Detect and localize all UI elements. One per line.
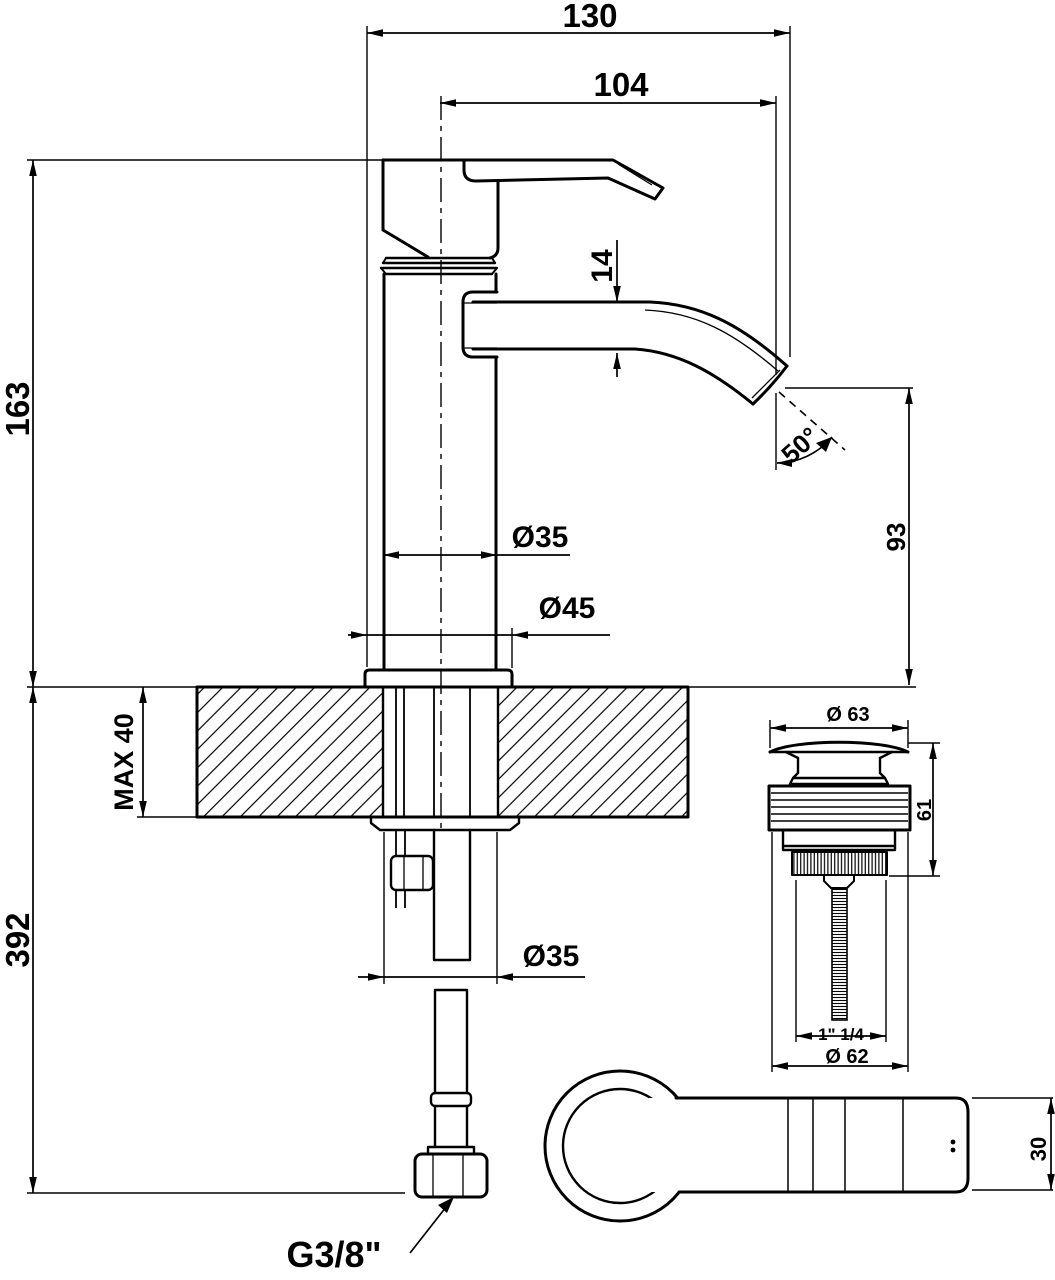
body-collar xyxy=(381,258,497,274)
dim-shank-diameter: Ø35 xyxy=(523,940,580,973)
countertop-section xyxy=(197,687,688,817)
top-view-faucet xyxy=(545,1071,968,1221)
waste-rod-boss xyxy=(824,875,854,888)
faucet-technical-drawing: 130 104 163 392 MAX 40 14 50° 93 Ø35 Ø45… xyxy=(0,0,1055,1280)
dim-base-diameter: Ø45 xyxy=(539,592,596,625)
front-view-faucet xyxy=(197,160,787,1197)
supply-hose-lower xyxy=(435,1106,467,1147)
countertop-hatch-left xyxy=(197,688,383,816)
supply-hose-upper xyxy=(435,990,467,1093)
supply-nut xyxy=(415,1154,487,1197)
dim-waste-thread: 1" 1/4 xyxy=(818,1025,864,1044)
base-flange xyxy=(365,670,512,687)
lower-flange xyxy=(371,817,519,830)
dim-spout-tube: 14 xyxy=(586,249,619,283)
body-column xyxy=(384,274,496,668)
dim-waste-flange-diameter: Ø 62 xyxy=(825,1046,868,1068)
dim-waste-height: 61 xyxy=(914,799,936,821)
hose-collar xyxy=(431,1093,471,1106)
technical-drawing-page: 130 104 163 392 MAX 40 14 50° 93 Ø35 Ø45… xyxy=(0,0,1055,1280)
dimension-lines xyxy=(33,33,1051,1253)
waste-pull-rod xyxy=(832,888,847,1020)
waste-cap xyxy=(770,742,908,752)
waste-view xyxy=(769,742,910,1020)
dim-height-below: 392 xyxy=(0,912,36,967)
dim-waste-cap-diameter: Ø 63 xyxy=(826,704,869,726)
waste-cap-stem xyxy=(798,758,880,773)
waste-neck xyxy=(783,830,895,850)
dim-body-diameter: Ø35 xyxy=(512,521,569,554)
mounting-nut xyxy=(391,856,433,890)
handle-lever-inner-line xyxy=(618,164,652,185)
dim-height-above-deck: 163 xyxy=(0,381,36,436)
dim-deck-thickness: MAX 40 xyxy=(109,713,139,811)
countertop-hatch-right xyxy=(498,688,688,816)
dim-overall-width: 130 xyxy=(562,0,617,34)
waste-ribbed-body xyxy=(769,786,910,830)
dim-spout-projection: 104 xyxy=(593,66,649,103)
waste-thread xyxy=(792,852,887,875)
dim-outlet-height: 93 xyxy=(881,523,911,552)
spout xyxy=(473,302,787,404)
dim-handle-width: 30 xyxy=(1026,1137,1051,1161)
supply-shank-pipe xyxy=(434,830,470,960)
label-supply-thread: G3/8" xyxy=(286,1234,381,1275)
